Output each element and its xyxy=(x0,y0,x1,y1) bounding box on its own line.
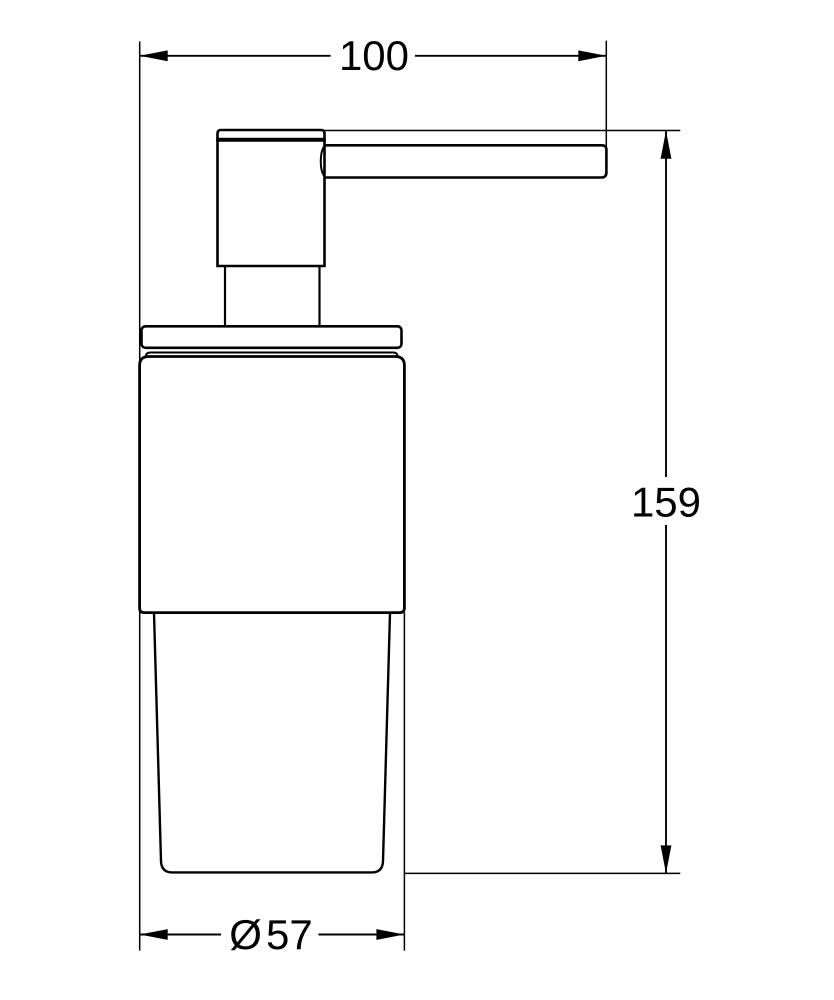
svg-text:Ø57: Ø57 xyxy=(229,911,312,958)
svg-text:159: 159 xyxy=(631,478,701,525)
svg-text:100: 100 xyxy=(339,32,409,79)
